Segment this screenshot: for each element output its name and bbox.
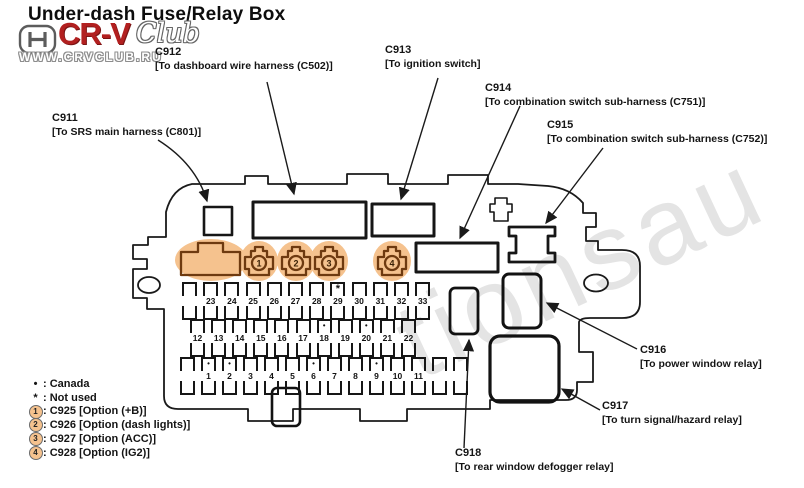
fuse-6: •6 <box>306 357 321 395</box>
canada-mark: • <box>308 359 319 368</box>
fuse-4: 4 <box>264 357 279 395</box>
connector-id: C914 <box>485 82 705 96</box>
fuse-top-terminal <box>267 282 282 296</box>
fuse-bottom-terminal <box>190 343 205 357</box>
fuse-13: 13 <box>211 319 226 357</box>
fuse-top-terminal <box>415 282 430 296</box>
fuse-bottom-terminal <box>453 381 468 395</box>
fuse-top-terminal: • <box>359 319 374 333</box>
fuse-bottom-terminal <box>253 343 268 357</box>
fuse-top-terminal <box>203 282 218 296</box>
connector-desc: [To rear window defogger relay] <box>455 461 614 475</box>
fuse-top-terminal <box>380 319 395 333</box>
legend-text: : C926 [Option (dash lights)] <box>43 419 190 431</box>
legend-symbol-icon: * <box>28 392 43 404</box>
legend-circled-number-icon: 2 <box>28 418 43 432</box>
fuse-top-terminal <box>296 319 311 333</box>
fuse-3: 3 <box>243 357 258 395</box>
fuse-bottom-terminal <box>338 343 353 357</box>
fuse-bottom-terminal <box>306 381 321 395</box>
fuse-number: 11 <box>411 371 426 381</box>
fuse-number: 30 <box>352 296 367 306</box>
legend-symbol: * <box>33 392 37 404</box>
fuse-bottom-terminal <box>285 381 300 395</box>
fuse-number: 8 <box>348 371 363 381</box>
fuse-bottom-terminal <box>267 306 282 320</box>
fuse-10: 10 <box>390 357 405 395</box>
legend-symbol: • <box>34 378 38 390</box>
connector-id: C918 <box>455 447 614 461</box>
fuse-8: 8 <box>348 357 363 395</box>
legend-text: : Canada <box>43 378 89 390</box>
fuse-19: 19 <box>338 319 353 357</box>
fuse-slot-unnumbered <box>453 357 468 395</box>
fuse-number: 16 <box>274 333 289 343</box>
fuse-bottom-terminal <box>274 343 289 357</box>
fuse-top-terminal: • <box>222 357 237 371</box>
fuse-17: 17 <box>296 319 311 357</box>
fuse-number: 5 <box>285 371 300 381</box>
fuse-bottom-terminal <box>317 343 332 357</box>
connector-desc: [To dashboard wire harness (C502)] <box>155 60 333 74</box>
legend: •: Canada*: Not used1: C925 [Option (+B)… <box>28 377 190 460</box>
fuse-number: 24 <box>224 296 239 306</box>
fuse-number: 25 <box>246 296 261 306</box>
fuse-9: •9 <box>369 357 384 395</box>
logo-site-url: WWW.CRVCLUB.RU <box>19 50 163 64</box>
fuse-top-terminal: • <box>369 357 384 371</box>
fuse-29: *29 <box>330 282 345 320</box>
fuse-number: 7 <box>327 371 342 381</box>
fuse-12: 12 <box>190 319 205 357</box>
fuse-top-terminal <box>180 357 195 371</box>
fuse-number: 20 <box>359 333 374 343</box>
legend-circled-number-icon: 4 <box>28 446 43 460</box>
fuse-top-terminal <box>264 357 279 371</box>
fuse-20: •20 <box>359 319 374 357</box>
fuse-number: 32 <box>394 296 409 306</box>
legend-item-5: 4: C928 [Option (IG2)] <box>28 446 190 460</box>
callout-c915: C915 [To combination switch sub-harness … <box>547 119 767 146</box>
fuse-5: 5 <box>285 357 300 395</box>
fuse-number: 26 <box>267 296 282 306</box>
fuse-bottom-terminal <box>348 381 363 395</box>
fuse-top-terminal <box>253 319 268 333</box>
fuse-top-terminal <box>411 357 426 371</box>
callout-c912: C912 [To dashboard wire harness (C502)] <box>155 46 333 73</box>
fuse-bottom-terminal <box>224 306 239 320</box>
fuse-number <box>432 371 447 381</box>
fuse-bottom-terminal <box>296 343 311 357</box>
fuse-number: 4 <box>264 371 279 381</box>
fuse-bottom-terminal <box>288 306 303 320</box>
fuse-top-terminal <box>348 357 363 371</box>
fuse-bottom-terminal <box>309 306 324 320</box>
canada-mark: • <box>371 359 382 368</box>
legend-symbol: 2 <box>29 418 43 432</box>
fuse-23: 23 <box>203 282 218 320</box>
legend-symbol: 4 <box>29 446 43 460</box>
fuse-number: 12 <box>190 333 205 343</box>
fuse-top-terminal <box>401 319 416 333</box>
connector-id: C913 <box>385 44 480 58</box>
fuse-top-terminal <box>394 282 409 296</box>
connector-desc: [To SRS main harness (C801)] <box>52 126 201 140</box>
fuse-bottom-terminal <box>211 343 226 357</box>
fuse-number: 18 <box>317 333 332 343</box>
fuse-bottom-terminal <box>264 381 279 395</box>
fuse-top-terminal <box>390 357 405 371</box>
fuse-top-terminal <box>243 357 258 371</box>
callout-c917: C917 [To turn signal/hazard relay] <box>602 400 742 427</box>
fuse-bottom-terminal <box>222 381 237 395</box>
legend-item-2: 1: C925 [Option (+B)] <box>28 405 190 419</box>
fuse-27: 27 <box>288 282 303 320</box>
fuse-number: 13 <box>211 333 226 343</box>
legend-text: : C925 [Option (+B)] <box>43 405 147 417</box>
fuse-number: 17 <box>296 333 311 343</box>
fuse-bottom-terminal <box>401 343 416 357</box>
logo-club-text: Club <box>136 18 200 49</box>
legend-symbol: 3 <box>29 432 43 446</box>
fuse-top-terminal: • <box>201 357 216 371</box>
canada-mark: • <box>203 359 214 368</box>
fuse-top-terminal: * <box>330 282 345 296</box>
canada-mark: • <box>224 359 235 368</box>
fuse-2: •2 <box>222 357 237 395</box>
callout-c914: C914 [To combination switch sub-harness … <box>485 82 705 109</box>
fuse-top-terminal <box>224 282 239 296</box>
fuse-22: 22 <box>401 319 416 357</box>
fuse-number <box>453 371 468 381</box>
fuse-number: 15 <box>253 333 268 343</box>
fuse-top-terminal <box>373 282 388 296</box>
canada-mark: • <box>361 321 372 330</box>
fuse-top-terminal <box>211 319 226 333</box>
fuse-26: 26 <box>267 282 282 320</box>
fuse-top-terminal <box>352 282 367 296</box>
fuse-30: 30 <box>352 282 367 320</box>
connector-desc: [To ignition switch] <box>385 58 480 72</box>
fuse-31: 31 <box>373 282 388 320</box>
connector-desc: [To combination switch sub-harness (C751… <box>485 96 705 110</box>
callout-c913: C913 [To ignition switch] <box>385 44 480 71</box>
fuse-top-terminal <box>246 282 261 296</box>
fuse-bottom-terminal <box>327 381 342 395</box>
fuse-bottom-terminal <box>201 381 216 395</box>
fuse-top-terminal <box>327 357 342 371</box>
connector-id: C912 <box>155 46 333 60</box>
connector-id: C916 <box>640 344 762 358</box>
callout-c916: C916 [To power window relay] <box>640 344 762 371</box>
fuse-25: 25 <box>246 282 261 320</box>
connector-id: C917 <box>602 400 742 414</box>
connector-desc: [To combination switch sub-harness (C752… <box>547 133 767 147</box>
not-used-mark: * <box>332 284 343 294</box>
fuse-top-terminal <box>182 282 197 296</box>
fuse-bottom-terminal <box>369 381 384 395</box>
fuse-33: 33 <box>415 282 430 320</box>
fuse-number: 27 <box>288 296 303 306</box>
fuse-slot-unnumbered <box>182 282 197 320</box>
fuse-number: 6 <box>306 371 321 381</box>
fuse-15: 15 <box>253 319 268 357</box>
fuse-number: 29 <box>330 296 345 306</box>
fuse-21: 21 <box>380 319 395 357</box>
fuse-top-terminal <box>288 282 303 296</box>
fuse-bottom-terminal <box>203 306 218 320</box>
fuse-bottom-terminal <box>411 381 426 395</box>
fuse-bottom-terminal <box>432 381 447 395</box>
legend-item-0: •: Canada <box>28 377 190 391</box>
fuse-number: 2 <box>222 371 237 381</box>
fuse-bottom-terminal <box>182 306 197 320</box>
canada-mark: • <box>319 321 330 330</box>
fuse-number: 23 <box>203 296 218 306</box>
fuse-number: 10 <box>390 371 405 381</box>
fuse-number: 1 <box>201 371 216 381</box>
fuse-bottom-terminal <box>390 381 405 395</box>
fuse-11: 11 <box>411 357 426 395</box>
legend-text: : C927 [Option (ACC)] <box>43 433 156 445</box>
fuse-top-terminal <box>285 357 300 371</box>
fuse-top-terminal <box>190 319 205 333</box>
fuse-16: 16 <box>274 319 289 357</box>
fuse-top-terminal <box>338 319 353 333</box>
fuse-number: 21 <box>380 333 395 343</box>
connector-desc: [To power window relay] <box>640 358 762 372</box>
legend-text: : Not used <box>43 392 97 404</box>
legend-item-4: 3: C927 [Option (ACC)] <box>28 432 190 446</box>
fuse-top-terminal: • <box>317 319 332 333</box>
fuse-7: 7 <box>327 357 342 395</box>
connector-desc: [To turn signal/hazard relay] <box>602 414 742 428</box>
callout-c918: C918 [To rear window defogger relay] <box>455 447 614 474</box>
legend-symbol-icon: • <box>28 378 43 390</box>
fuse-bottom-terminal <box>352 306 367 320</box>
fuse-top-terminal <box>309 282 324 296</box>
connector-id: C911 <box>52 112 201 126</box>
fuse-top-terminal <box>274 319 289 333</box>
fuse-bottom-terminal <box>246 306 261 320</box>
legend-circled-number-icon: 1 <box>28 405 43 419</box>
fuse-bottom-terminal <box>232 343 247 357</box>
fuse-28: 28 <box>309 282 324 320</box>
fuse-18: •18 <box>317 319 332 357</box>
legend-item-3: 2: C926 [Option (dash lights)] <box>28 418 190 432</box>
fuse-32: 32 <box>394 282 409 320</box>
fuse-bottom-terminal <box>380 343 395 357</box>
fuse-bottom-terminal <box>415 306 430 320</box>
fuse-bottom-terminal <box>373 306 388 320</box>
fuse-24: 24 <box>224 282 239 320</box>
fuse-number <box>182 296 197 306</box>
logo-brand-text: CR-V <box>58 16 130 52</box>
fuse-top-terminal: • <box>306 357 321 371</box>
fuse-number: 19 <box>338 333 353 343</box>
fuse-14: 14 <box>232 319 247 357</box>
legend-circled-number-icon: 3 <box>28 432 43 446</box>
callout-c911: C911 [To SRS main harness (C801)] <box>52 112 201 139</box>
legend-symbol: 1 <box>29 405 43 419</box>
fuse-number: 22 <box>401 333 416 343</box>
legend-item-1: *: Not used <box>28 391 190 405</box>
fuse-slot-unnumbered <box>432 357 447 395</box>
legend-text: : C928 [Option (IG2)] <box>43 447 150 459</box>
fuse-top-terminal <box>232 319 247 333</box>
fuse-1: •1 <box>201 357 216 395</box>
fuse-number: 28 <box>309 296 324 306</box>
fuse-bottom-terminal <box>243 381 258 395</box>
fuse-number: 33 <box>415 296 430 306</box>
fuse-number: 3 <box>243 371 258 381</box>
fuse-bottom-terminal <box>394 306 409 320</box>
fuse-number: 9 <box>369 371 384 381</box>
fuse-bottom-terminal <box>330 306 345 320</box>
fuse-top-terminal <box>432 357 447 371</box>
fuse-number: 31 <box>373 296 388 306</box>
connector-id: C915 <box>547 119 767 133</box>
fuse-bottom-terminal <box>359 343 374 357</box>
fuse-top-terminal <box>453 357 468 371</box>
fuse-number: 14 <box>232 333 247 343</box>
